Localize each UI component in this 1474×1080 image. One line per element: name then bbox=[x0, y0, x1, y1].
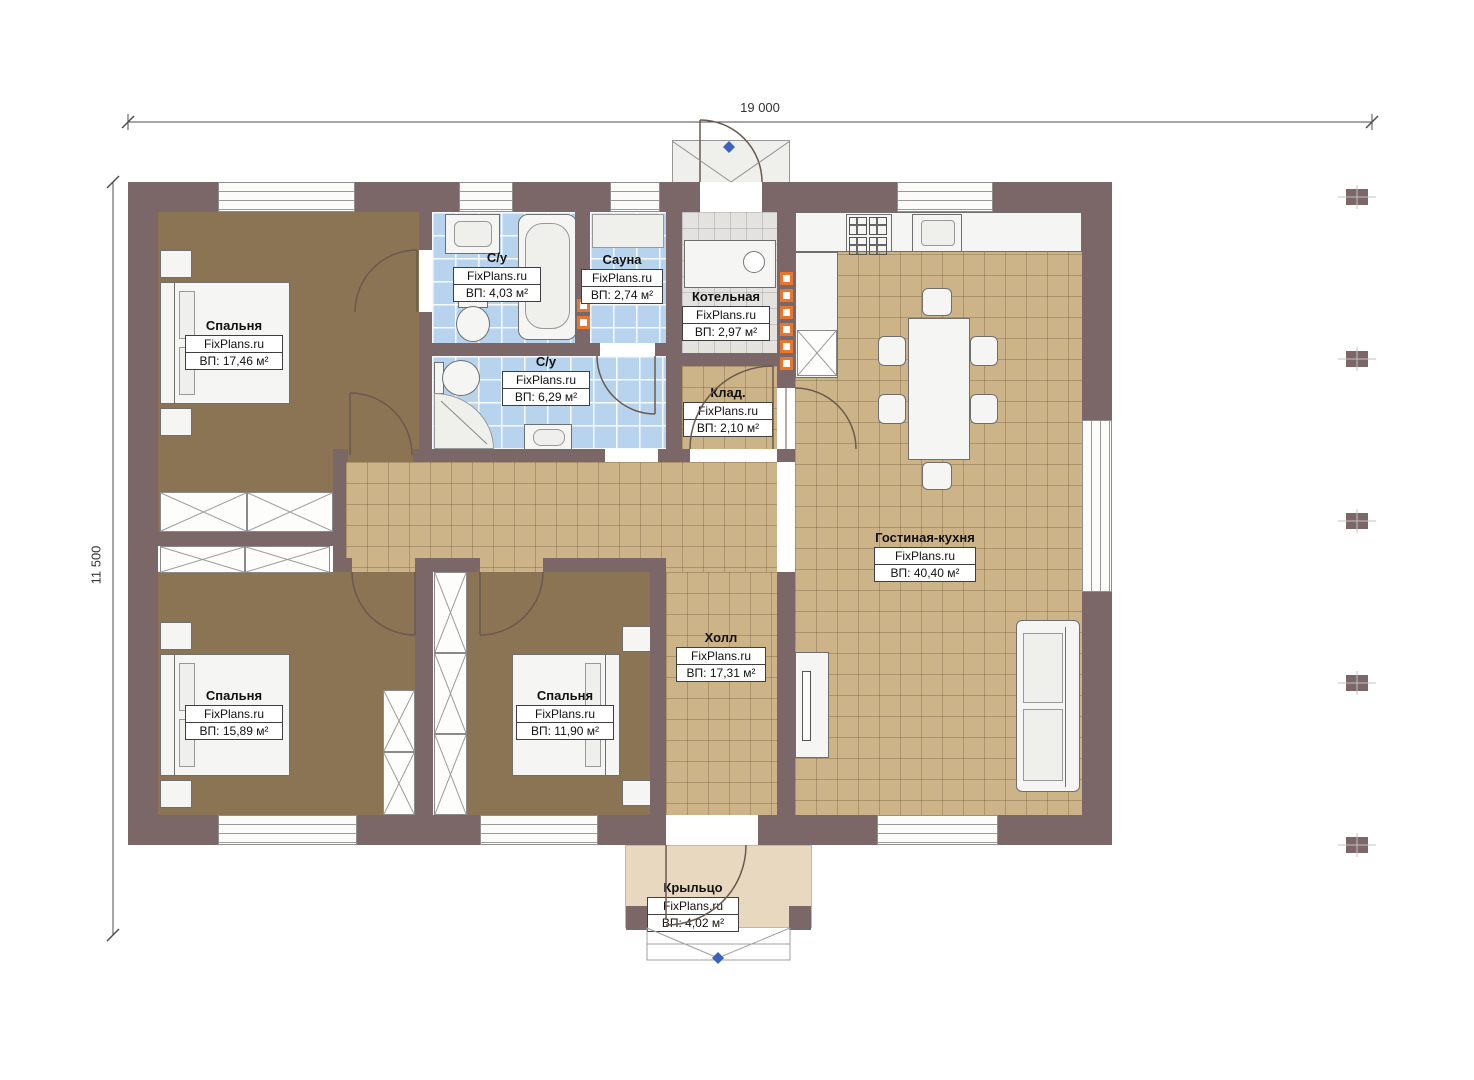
window-kitchen bbox=[897, 182, 993, 212]
room-label-bedroom3: Спальня FixPlans.ru ВП: 11,90 м² bbox=[516, 688, 614, 740]
watermark: FixPlans.ru bbox=[684, 403, 772, 419]
dimension-height-label: 11 500 bbox=[89, 546, 104, 585]
wall-interior bbox=[543, 558, 666, 572]
porch-post bbox=[626, 906, 648, 930]
fridge bbox=[797, 330, 837, 376]
room-label-sauna: Сауна FixPlans.ru ВП: 2,74 м² bbox=[581, 252, 663, 304]
window-bedroom2 bbox=[218, 815, 357, 845]
wardrobe-bedroom1 bbox=[247, 492, 333, 532]
room-area: ВП: 17,31 м² bbox=[677, 664, 765, 681]
room-name: Сауна bbox=[581, 252, 663, 267]
porch-steps bbox=[647, 928, 790, 960]
room-label-bedroom1: Спальня FixPlans.ru ВП: 17,46 м² bbox=[185, 318, 283, 370]
hall-floor-vertical bbox=[666, 572, 777, 815]
room-label-bedroom2: Спальня FixPlans.ru ВП: 15,89 м² bbox=[185, 688, 283, 740]
nightstand bbox=[160, 408, 192, 436]
dining-chair bbox=[970, 336, 998, 366]
wardrobe-bedroom3 bbox=[434, 572, 467, 653]
porch-post bbox=[789, 906, 811, 930]
wardrobe-bedroom2-side bbox=[383, 690, 415, 752]
room-name: Холл bbox=[676, 630, 766, 645]
doorway-porch bbox=[666, 815, 758, 845]
sofa-back bbox=[1065, 627, 1077, 787]
doorway-kitchen bbox=[777, 388, 795, 449]
boiler-unit bbox=[743, 251, 765, 273]
room-area: ВП: 2,10 м² bbox=[684, 419, 772, 436]
burner-icon bbox=[869, 217, 887, 235]
wardrobe-bedroom3 bbox=[434, 653, 467, 734]
sofa bbox=[1016, 620, 1080, 792]
room-area: ВП: 11,90 м² bbox=[517, 722, 613, 739]
sofa-seat bbox=[1023, 709, 1063, 781]
wall-interior bbox=[666, 212, 682, 462]
room-name: С/у bbox=[453, 250, 541, 265]
window-bedroom3 bbox=[480, 815, 598, 845]
room-label-boiler: Котельная FixPlans.ru ВП: 2,97 м² bbox=[682, 289, 770, 341]
window-sauna bbox=[610, 182, 660, 212]
watermark: FixPlans.ru bbox=[582, 270, 662, 286]
room-name: Спальня bbox=[185, 318, 283, 333]
wall-interior bbox=[777, 449, 795, 462]
watermark: FixPlans.ru bbox=[683, 307, 769, 323]
bed-headboard bbox=[161, 283, 175, 403]
sauna-bench bbox=[592, 214, 664, 248]
room-label-living: Гостиная-кухня FixPlans.ru ВП: 40,40 м² bbox=[874, 530, 976, 582]
wall-interior bbox=[415, 558, 433, 572]
room-area: ВП: 40,40 м² bbox=[875, 564, 975, 581]
heater-icon bbox=[780, 323, 793, 336]
terrace-post bbox=[1346, 351, 1368, 367]
wall-interior bbox=[433, 558, 480, 572]
room-area: ВП: 4,03 м² bbox=[454, 284, 540, 301]
wall-interior bbox=[158, 532, 346, 546]
dining-chair bbox=[922, 288, 952, 316]
wall-interior bbox=[333, 462, 346, 572]
wardrobe-bedroom1 bbox=[160, 492, 247, 532]
burner-icon bbox=[849, 217, 867, 235]
room-area: ВП: 15,89 м² bbox=[186, 722, 282, 739]
watermark: FixPlans.ru bbox=[677, 648, 765, 664]
kitchen-sink-basin bbox=[921, 220, 955, 246]
room-name: Котельная bbox=[682, 289, 770, 304]
floor-plan-canvas: Спальня FixPlans.ru ВП: 17,46 м² С/у Fix… bbox=[0, 0, 1474, 1080]
terrace-post bbox=[1346, 837, 1368, 853]
watermark: FixPlans.ru bbox=[454, 268, 540, 284]
nightstand bbox=[622, 626, 652, 652]
watermark: FixPlans.ru bbox=[503, 372, 589, 388]
wall-interior bbox=[415, 572, 433, 815]
room-name: Крыльцо bbox=[647, 880, 739, 895]
wall-interior bbox=[333, 449, 348, 462]
dining-chair bbox=[878, 394, 906, 424]
room-name: Клад. bbox=[683, 385, 773, 400]
kitchen-sink bbox=[912, 214, 962, 252]
tv-screen bbox=[802, 671, 811, 741]
room-label-bath1: С/у FixPlans.ru ВП: 4,03 м² bbox=[453, 250, 541, 302]
wall-interior bbox=[419, 312, 432, 462]
room-label-hall: Холл FixPlans.ru ВП: 17,31 м² bbox=[676, 630, 766, 682]
nightstand bbox=[160, 780, 192, 808]
wardrobe-bedroom3 bbox=[434, 734, 467, 815]
burner-icon bbox=[849, 237, 867, 255]
nightstand bbox=[160, 622, 192, 650]
room-label-storage: Клад. FixPlans.ru ВП: 2,10 м² bbox=[683, 385, 773, 437]
heater-icon bbox=[780, 357, 793, 370]
bathroom-sink bbox=[524, 424, 572, 450]
room-name: Спальня bbox=[516, 688, 614, 703]
wardrobe-bedroom2 bbox=[245, 546, 330, 573]
wardrobe-bedroom2 bbox=[160, 546, 245, 573]
nightstand bbox=[622, 780, 652, 806]
sink-basin bbox=[454, 221, 492, 247]
room-area: ВП: 2,97 м² bbox=[683, 323, 769, 340]
window-bath1 bbox=[459, 182, 513, 212]
wall-interior bbox=[682, 353, 777, 366]
stove bbox=[846, 214, 892, 252]
heater-icon bbox=[577, 316, 590, 329]
room-area: ВП: 6,29 м² bbox=[503, 388, 589, 405]
tv-console bbox=[795, 652, 829, 758]
dining-chair bbox=[878, 336, 906, 366]
toilet-bowl bbox=[456, 306, 490, 342]
bathroom-sink bbox=[445, 214, 500, 254]
room-label-bath2: С/у FixPlans.ru ВП: 6,29 м² bbox=[502, 354, 590, 406]
watermark: FixPlans.ru bbox=[186, 706, 282, 722]
room-area: ВП: 4,02 м² bbox=[648, 914, 738, 931]
room-name: Спальня bbox=[185, 688, 283, 703]
dining-chair bbox=[970, 394, 998, 424]
wall-interior bbox=[419, 212, 432, 250]
heater-icon bbox=[780, 272, 793, 285]
room-name: С/у bbox=[502, 354, 590, 369]
heater-icon bbox=[780, 306, 793, 319]
wardrobe-bedroom2-side bbox=[383, 752, 415, 815]
window-living bbox=[877, 815, 998, 845]
terrace-post bbox=[1346, 513, 1368, 529]
terrace-post bbox=[1346, 675, 1368, 691]
entrance-canopy bbox=[672, 140, 790, 183]
window-living-right bbox=[1082, 420, 1112, 592]
heater-icon bbox=[780, 289, 793, 302]
watermark: FixPlans.ru bbox=[186, 336, 282, 352]
room-name: Гостиная-кухня bbox=[874, 530, 976, 545]
nightstand bbox=[160, 250, 192, 278]
wall-interior bbox=[650, 572, 666, 815]
heater-icon bbox=[780, 340, 793, 353]
dimension-width-label: 19 000 bbox=[740, 100, 780, 115]
watermark: FixPlans.ru bbox=[875, 548, 975, 564]
wall-interior bbox=[777, 572, 795, 815]
room-area: ВП: 17,46 м² bbox=[186, 352, 282, 369]
hall-floor-corridor bbox=[346, 462, 795, 572]
doorway-entrance bbox=[700, 182, 762, 212]
room-label-porch: Крыльцо FixPlans.ru ВП: 4,02 м² bbox=[647, 880, 739, 932]
wall-interior bbox=[346, 558, 352, 572]
opening-hall-living bbox=[777, 462, 795, 572]
burner-icon bbox=[869, 237, 887, 255]
wall-interior bbox=[413, 449, 605, 462]
wall-exterior-left bbox=[128, 212, 158, 815]
boiler-counter bbox=[684, 240, 776, 288]
dining-table bbox=[908, 318, 970, 460]
sink-basin bbox=[533, 429, 565, 446]
bed-headboard bbox=[161, 655, 175, 775]
sofa-seat bbox=[1023, 633, 1063, 703]
room-area: ВП: 2,74 м² bbox=[582, 286, 662, 303]
toilet-bowl bbox=[442, 360, 480, 396]
wall-interior bbox=[655, 343, 666, 356]
dining-chair bbox=[922, 462, 952, 490]
watermark: FixPlans.ru bbox=[648, 898, 738, 914]
terrace-post bbox=[1346, 189, 1368, 205]
watermark: FixPlans.ru bbox=[517, 706, 613, 722]
window-bedroom1 bbox=[218, 182, 355, 212]
